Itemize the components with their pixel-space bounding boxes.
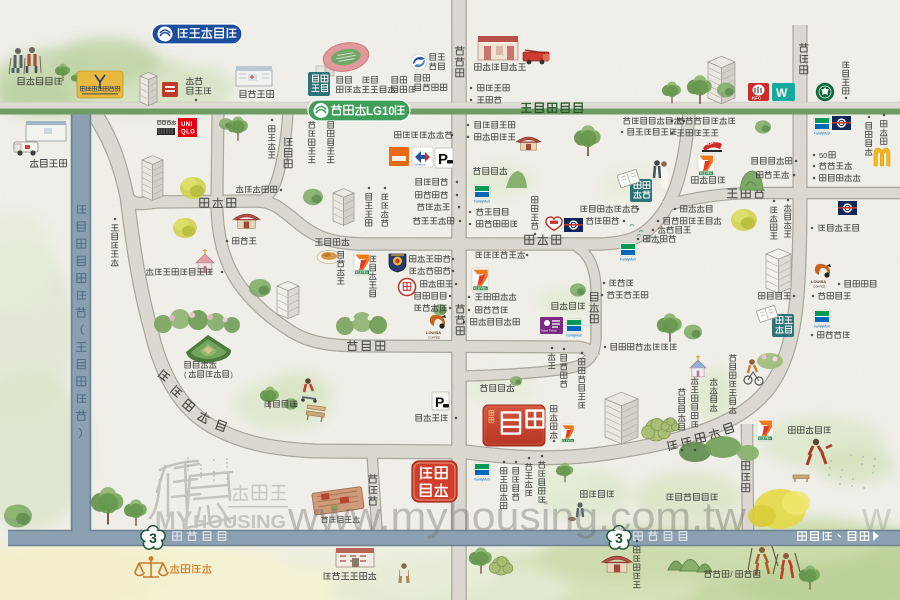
svg-text:HOUSING: HOUSING [193,511,286,532]
svg-text:ELEVEn: ELEVEn [759,437,771,441]
svg-text:LOUISA: LOUISA [426,330,441,335]
svg-text:FamilyMart: FamilyMart [474,200,490,204]
svg-text:FamilyMart: FamilyMart [814,325,830,329]
svg-text:COFFEE: COFFEE [428,336,440,340]
svg-text:FamilyMart: FamilyMart [474,478,490,482]
svg-text:MY: MY [155,507,193,535]
svg-text:LG10: LG10 [366,106,395,118]
svg-text:P: P [438,151,448,168]
svg-text:FamilyMart: FamilyMart [566,334,582,338]
svg-text:FamilyMart: FamilyMart [620,258,636,262]
svg-text:QLO: QLO [181,130,195,136]
svg-text:50: 50 [819,151,827,160]
svg-text:LOUISA: LOUISA [811,279,826,284]
svg-text:Carrefour: Carrefour [413,163,426,167]
svg-text:Taipei Fubon: Taipei Fubon [541,329,557,333]
svg-text:KFC: KFC [752,96,762,101]
svg-text:ELEVEn: ELEVEn [356,271,368,275]
svg-text:): ) [230,370,232,379]
svg-text:ELEVEn: ELEVEn [700,172,712,176]
svg-text:w: w [861,495,891,539]
svg-text:W: W [776,86,788,100]
svg-text:FamilyMart: FamilyMart [814,132,830,136]
svg-text:COFFEE: COFFEE [813,285,825,289]
svg-text:UNI: UNI [181,122,193,128]
svg-text:ELEVEn: ELEVEn [562,439,573,443]
svg-text:P: P [435,394,444,410]
svg-text:www.myhousing.com.tw: www.myhousing.com.tw [287,495,746,539]
svg-text:ELEVEn: ELEVEn [474,287,487,291]
